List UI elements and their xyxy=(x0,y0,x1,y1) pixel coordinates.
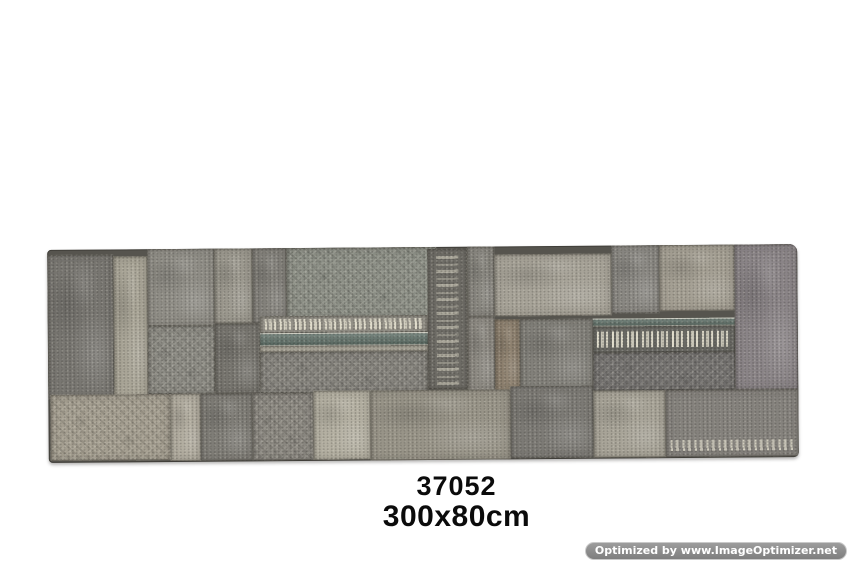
rug-patch xyxy=(252,393,314,460)
watermark-badge: Optimized by www.ImageOptimizer.net xyxy=(585,542,847,560)
rug-patch xyxy=(215,323,261,393)
rug-patch xyxy=(370,389,511,460)
rug-patch xyxy=(611,245,660,313)
caption: 37052 300x80cm xyxy=(64,472,849,534)
rug-patch xyxy=(734,244,798,389)
rug-patch xyxy=(113,256,148,399)
rug-patch xyxy=(468,316,496,391)
rug-patch xyxy=(510,386,594,459)
rug-patch xyxy=(427,249,468,389)
product-photo-page: 37052 300x80cm Optimized by www.ImageOpt… xyxy=(0,0,849,563)
product-code: 37052 xyxy=(64,472,849,501)
rug-patch xyxy=(260,332,428,346)
rug-patch xyxy=(520,319,594,392)
rug-patch xyxy=(148,326,216,395)
rug-patch xyxy=(252,248,287,323)
rug-patch xyxy=(47,254,114,400)
rug-patch xyxy=(593,352,735,391)
rug-patch xyxy=(200,393,253,460)
rug-patch xyxy=(494,254,611,317)
rug-patch xyxy=(593,326,735,353)
product-size: 300x80cm xyxy=(64,501,849,533)
rug-patch xyxy=(147,249,215,327)
rug-photo xyxy=(47,244,799,463)
rug-patch xyxy=(50,394,171,461)
rug-patch xyxy=(313,390,371,459)
rug-patch xyxy=(593,390,666,458)
rug-patch xyxy=(260,351,428,393)
rug-patch xyxy=(495,319,521,391)
rug-patch xyxy=(467,246,495,316)
rug-patch xyxy=(286,247,437,320)
rug-patch xyxy=(659,245,735,312)
rug-patch xyxy=(665,389,799,457)
rug-patch xyxy=(214,248,253,323)
rug-patch xyxy=(260,315,428,333)
rug-patch xyxy=(170,394,201,461)
